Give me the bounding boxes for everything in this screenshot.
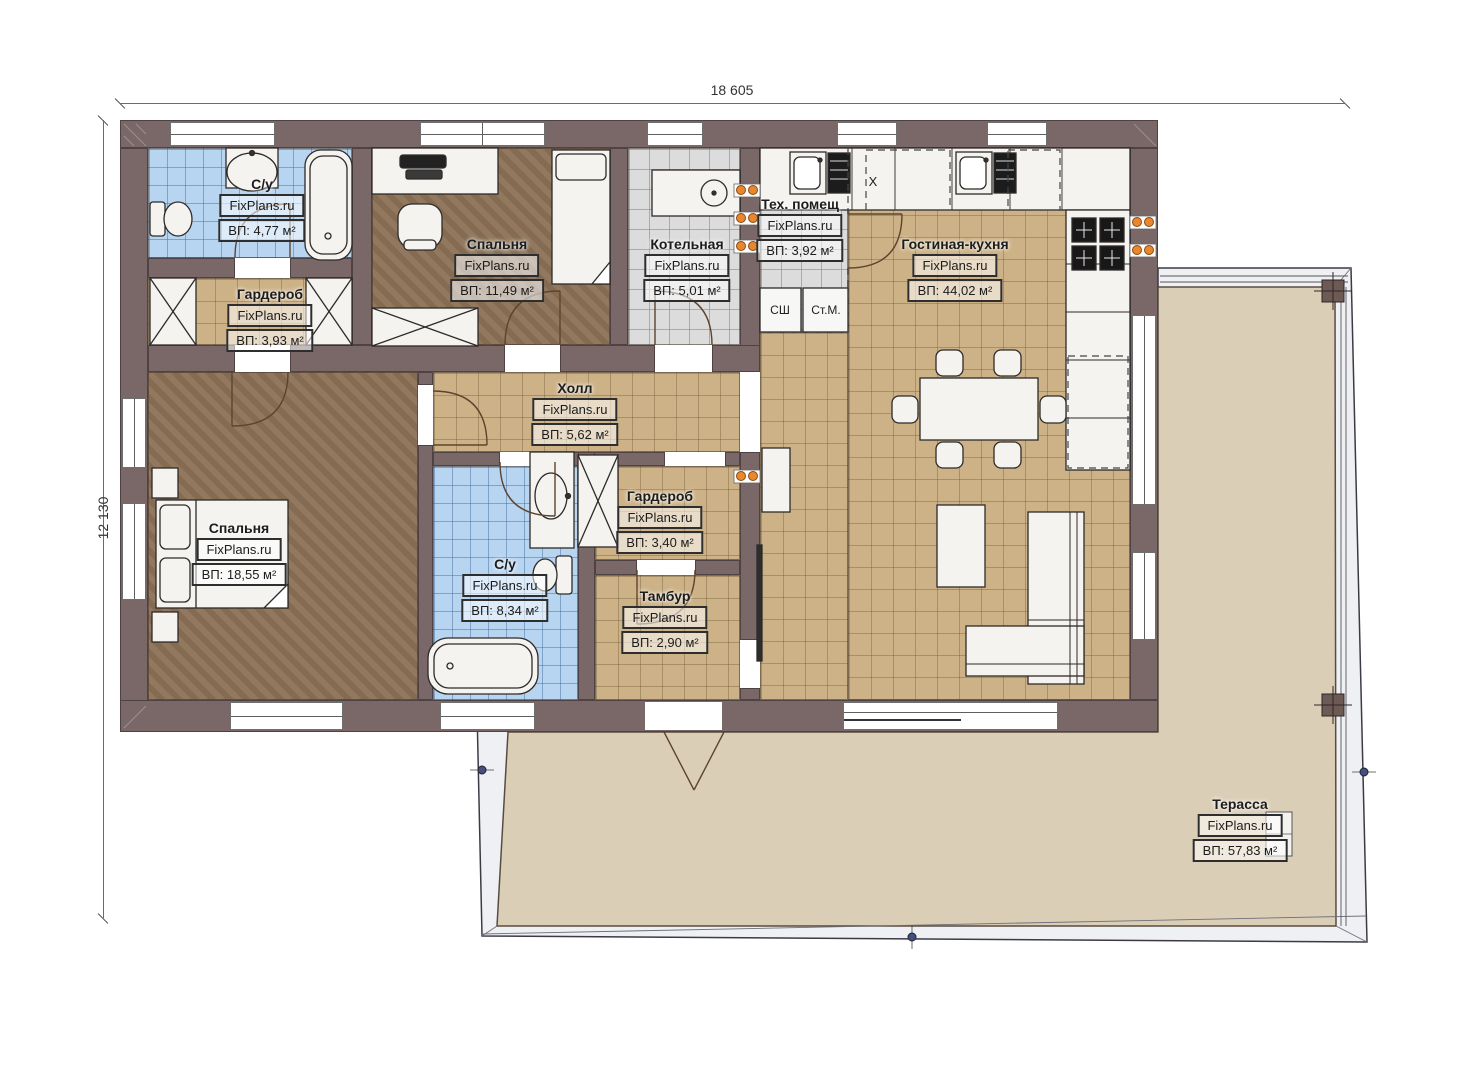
coffee-table	[937, 505, 985, 587]
watermark: FixPlans.ru	[454, 254, 539, 277]
drainer	[828, 153, 850, 193]
faucet	[250, 151, 255, 156]
watermark: FixPlans.ru	[912, 254, 997, 277]
room-label-wardrobe1: Гардероб FixPlans.ru ВП: 3,93 м²	[226, 286, 313, 352]
room-area: ВП: 57,83 м²	[1193, 839, 1288, 862]
room-area: ВП: 2,90 м²	[621, 631, 708, 654]
door-arc	[848, 214, 902, 268]
room-label-wardrobe2: Гардероб FixPlans.ru ВП: 3,40 м²	[616, 488, 703, 554]
watermark: FixPlans.ru	[1197, 814, 1282, 837]
bathtub	[428, 638, 538, 694]
door-arc	[232, 372, 288, 426]
pillow	[556, 154, 606, 180]
dining-set	[892, 350, 1066, 468]
room-area: ВП: 4,77 м²	[218, 219, 305, 242]
room-area: ВП: 3,92 м²	[756, 239, 843, 262]
watermark: FixPlans.ru	[622, 606, 707, 629]
watermark: FixPlans.ru	[532, 398, 617, 421]
room-label-bedroom2: Спальня FixPlans.ru ВП: 18,55 м²	[192, 520, 287, 586]
chair-back	[404, 240, 436, 250]
watermark: FixPlans.ru	[462, 574, 547, 597]
room-label-wc1: С/у FixPlans.ru ВП: 4,77 м²	[218, 176, 305, 242]
radiator	[1130, 216, 1156, 229]
drainer	[994, 153, 1016, 193]
laptop	[400, 155, 446, 168]
nightstand	[152, 468, 178, 498]
bathtub	[305, 150, 352, 260]
boiler-fixtures	[652, 170, 740, 216]
watermark: FixPlans.ru	[644, 254, 729, 277]
sofa-section	[966, 626, 1084, 676]
console-cabinet	[762, 448, 790, 512]
counter-x-label: X	[869, 174, 878, 189]
dimension-height-label: 12 130	[95, 458, 111, 578]
watermark: FixPlans.ru	[617, 506, 702, 529]
chair	[892, 396, 918, 423]
room-area: ВП: 5,01 м²	[643, 279, 730, 302]
radiator	[734, 470, 760, 483]
dining-table	[920, 378, 1038, 440]
room-label-boiler: Котельная FixPlans.ru ВП: 5,01 м²	[643, 236, 730, 302]
room-label-tech: Тех. помещ FixPlans.ru ВП: 3,92 м²	[756, 196, 843, 262]
dimension-line-top	[120, 103, 1345, 104]
dimension-width-label: 18 605	[672, 82, 792, 98]
room-label-vestibule: Тамбур FixPlans.ru ВП: 2,90 м²	[621, 588, 708, 654]
toilet-bowl	[164, 202, 192, 236]
watermark: FixPlans.ru	[219, 194, 304, 217]
sink	[535, 473, 567, 519]
room-label-terrace: Терасса FixPlans.ru ВП: 57,83 м²	[1193, 796, 1288, 862]
room-label-wc2: С/у FixPlans.ru ВП: 8,34 м²	[461, 556, 548, 622]
pillow	[160, 558, 190, 602]
chair	[936, 350, 963, 376]
room-area: ВП: 18,55 м²	[192, 563, 287, 586]
chair	[994, 350, 1021, 376]
faucet	[566, 494, 571, 499]
room-area: ВП: 44,02 м²	[908, 279, 1003, 302]
floor-plan: СШ Ст.М. X	[0, 0, 1473, 1080]
entrance-door-swing	[664, 732, 724, 790]
toilet	[556, 556, 572, 594]
room-label-living: Гостиная-кухня FixPlans.ru ВП: 44,02 м²	[901, 236, 1008, 302]
tv-console	[757, 448, 790, 661]
room-area: ВП: 8,34 м²	[461, 599, 548, 622]
washer-label: Ст.М.	[811, 303, 841, 317]
drying-cabinet-label: СШ	[770, 303, 790, 317]
watermark: FixPlans.ru	[227, 304, 312, 327]
chair	[1040, 396, 1066, 423]
sofa-set	[937, 505, 1084, 684]
room-area: ВП: 11,49 м²	[450, 279, 544, 302]
door-arc	[433, 391, 487, 445]
room-label-bedroom1: Спальня FixPlans.ru ВП: 11,49 м²	[450, 236, 544, 302]
tv	[757, 545, 762, 661]
room-label-hall: Холл FixPlans.ru ВП: 5,62 м²	[531, 380, 618, 446]
chair	[994, 442, 1021, 468]
nightstand	[152, 612, 178, 642]
room-area: ВП: 3,93 м²	[226, 329, 313, 352]
keyboard	[406, 170, 442, 179]
pillow	[160, 505, 190, 549]
chair	[936, 442, 963, 468]
room-area: ВП: 5,62 м²	[531, 423, 618, 446]
toilet	[150, 202, 165, 236]
watermark: FixPlans.ru	[196, 538, 281, 561]
watermark: FixPlans.ru	[757, 214, 842, 237]
radiator	[1130, 244, 1156, 257]
room-area: ВП: 3,40 м²	[616, 531, 703, 554]
